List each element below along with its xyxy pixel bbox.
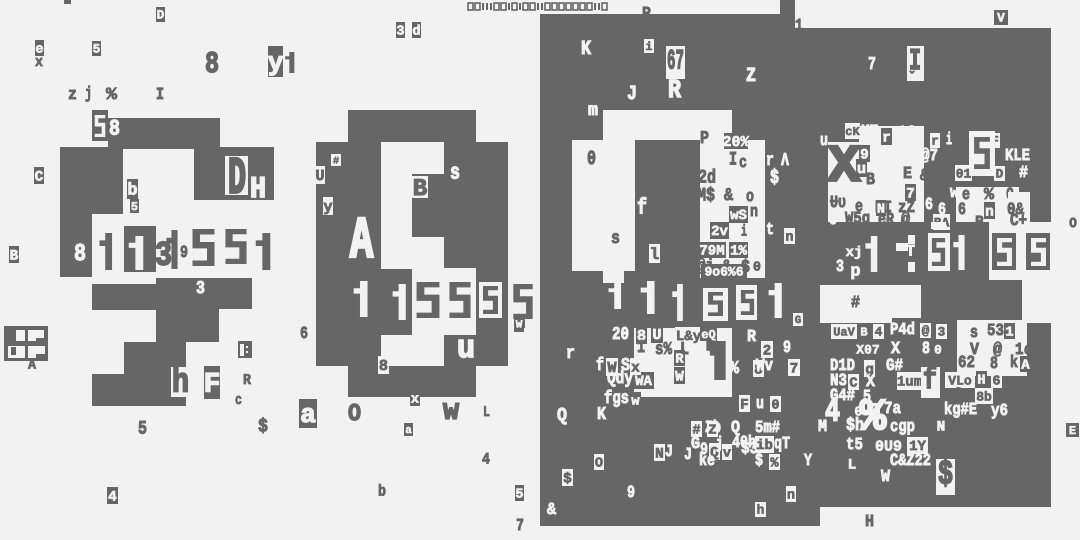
svg-text:n: n [750, 203, 758, 222]
svg-text:H: H [977, 374, 985, 389]
svg-text:H: H [250, 173, 266, 207]
svg-text:O: O [595, 457, 603, 472]
svg-text:cgp: cgp [890, 418, 915, 437]
svg-text:4: 4 [108, 489, 117, 505]
svg-text:b: b [378, 483, 386, 501]
svg-text:VLo: VLo [948, 373, 972, 388]
svg-text:fgs: fgs [604, 389, 629, 409]
svg-text:C&Z22: C&Z22 [890, 452, 931, 471]
svg-text:h: h [757, 503, 765, 518]
svg-text:o: o [1012, 389, 1020, 408]
svg-text:T: T [906, 243, 915, 261]
svg-text:5: 5 [515, 488, 523, 503]
svg-text:01: 01 [956, 166, 972, 181]
svg-text:u: u [857, 160, 866, 178]
svg-text:B: B [413, 176, 427, 203]
svg-text:C: C [35, 169, 44, 185]
svg-text:F: F [204, 370, 221, 401]
svg-text:W: W [607, 359, 617, 377]
svg-text:1: 1 [1005, 326, 1013, 341]
svg-text:W5g: W5g [845, 210, 870, 229]
svg-text:$: $ [770, 167, 779, 190]
svg-text:F: F [740, 397, 749, 413]
svg-text:s: s [611, 229, 620, 249]
svg-text:6: 6 [938, 201, 946, 220]
svg-text:5: 5 [138, 418, 147, 440]
svg-text:S: S [621, 356, 630, 376]
svg-text:eR: eR [878, 211, 895, 230]
svg-text:j: j [85, 85, 92, 104]
svg-text:c: c [235, 392, 242, 409]
svg-text:i: i [946, 131, 952, 150]
svg-text:u: u [820, 132, 828, 151]
svg-text:f: f [923, 364, 937, 398]
svg-text:a: a [405, 425, 412, 437]
svg-text:h: h [172, 364, 189, 402]
svg-text:W: W [881, 468, 891, 487]
svg-text:@: @ [901, 211, 910, 230]
svg-text:d: d [412, 25, 420, 40]
svg-text:4: 4 [482, 451, 490, 469]
svg-text:X: X [828, 137, 861, 196]
svg-text:9: 9 [627, 484, 635, 503]
svg-text:8: 8 [379, 357, 388, 375]
svg-text:P4d: P4d [890, 321, 915, 340]
svg-text:0: 0 [934, 343, 942, 358]
svg-text:O: O [348, 401, 361, 428]
svg-text:R: R [243, 372, 251, 389]
svg-text:y6: y6 [991, 402, 1008, 421]
svg-text:Ʌ: Ʌ [781, 151, 789, 171]
svg-text:V: V [997, 11, 1005, 26]
svg-text:Y: Y [804, 452, 813, 471]
svg-text:eQ: eQ [701, 328, 715, 342]
svg-text:a: a [300, 400, 316, 430]
svg-text:ˇ: ˇ [908, 70, 916, 88]
svg-text:8: 8 [990, 355, 998, 374]
svg-text:Q: Q [557, 405, 567, 427]
svg-text:kg#E: kg#E [944, 401, 977, 420]
svg-text:1: 1 [795, 17, 803, 36]
svg-text:ke: ke [699, 452, 715, 471]
svg-text:8b: 8b [976, 389, 992, 404]
svg-text:9: 9 [180, 244, 188, 263]
svg-text:R: R [747, 328, 757, 347]
svg-text:p: p [850, 263, 860, 282]
svg-text:t5: t5 [846, 436, 863, 455]
svg-text:@7: @7 [921, 147, 938, 166]
svg-text:xj: xj [846, 245, 863, 261]
svg-text:G: G [795, 315, 802, 327]
svg-text:7: 7 [516, 517, 524, 536]
svg-text:$: $ [938, 456, 953, 494]
svg-text:n: n [785, 231, 793, 246]
svg-text:r: r [882, 130, 891, 146]
svg-text:u: u [457, 330, 475, 367]
svg-text:P: P [642, 5, 651, 24]
svg-text:$: $ [755, 452, 763, 471]
svg-text:M$: M$ [697, 185, 715, 207]
svg-text:H: H [865, 513, 874, 532]
svg-text:x: x [631, 360, 640, 376]
svg-text:W: W [443, 400, 460, 427]
svg-text:C+: C+ [1010, 212, 1027, 231]
svg-text:3: 3 [836, 258, 844, 277]
svg-text:6: 6 [300, 325, 308, 344]
svg-text:y: y [268, 48, 284, 78]
svg-text:B: B [10, 248, 19, 264]
svg-text:&: & [547, 501, 557, 520]
svg-text:5: 5 [93, 42, 101, 57]
svg-text:D: D [996, 167, 1004, 182]
svg-text:8: 8 [922, 340, 930, 359]
svg-text:53: 53 [987, 322, 1004, 341]
svg-text:K: K [581, 38, 591, 61]
svg-text:E: E [1069, 424, 1076, 438]
svg-text:I: I [156, 86, 164, 105]
svg-text:HT: HT [861, 123, 878, 142]
svg-text:t: t [766, 221, 774, 240]
svg-text:5: 5 [131, 200, 138, 214]
svg-text:E: E [903, 165, 912, 184]
svg-text:J: J [665, 443, 673, 462]
svg-text:t3: t3 [899, 124, 916, 143]
svg-text:$h: $h [846, 416, 864, 436]
svg-text:8: 8 [205, 48, 219, 82]
svg-text:s%: s% [655, 340, 672, 360]
svg-text:UaV: UaV [833, 326, 855, 340]
svg-text:4: 4 [875, 325, 883, 340]
svg-text:4: 4 [825, 393, 840, 431]
svg-text:3: 3 [396, 25, 404, 40]
svg-text:R: R [675, 353, 684, 368]
svg-text:w: w [631, 395, 640, 410]
svg-text:J: J [627, 83, 637, 106]
svg-text:L: L [483, 404, 490, 421]
svg-text:9o6%6: 9o6%6 [704, 264, 743, 279]
svg-text:@: @ [922, 324, 930, 339]
svg-text:&: & [724, 186, 733, 206]
svg-text:A: A [1021, 359, 1030, 374]
svg-text:u: u [756, 395, 764, 414]
svg-text:s: s [450, 161, 460, 186]
svg-text:qT: qT [774, 435, 790, 454]
svg-text:c: c [739, 154, 747, 173]
svg-text:Z: Z [746, 65, 756, 88]
svg-text:6: 6 [958, 201, 966, 220]
svg-text:B: B [975, 214, 984, 233]
svg-text:r: r [566, 344, 575, 364]
svg-text:I1kz: I1kz [875, 145, 907, 164]
svg-text:l: l [650, 246, 660, 264]
svg-text:9: 9 [783, 339, 791, 358]
svg-text:67: 67 [667, 47, 684, 78]
svg-text:n: n [985, 204, 994, 220]
svg-text:D: D [228, 149, 246, 208]
svg-text:&x: &x [920, 167, 937, 186]
svg-text:i: i [645, 40, 652, 54]
svg-text:y: y [323, 198, 332, 216]
svg-text:o: o [1069, 214, 1077, 233]
svg-text:$: $ [563, 471, 572, 487]
svg-text:#: # [851, 294, 860, 313]
svg-text:z: z [68, 86, 77, 105]
svg-text:8: 8 [74, 241, 86, 268]
svg-text:B: B [866, 171, 875, 190]
svg-text:f: f [637, 196, 647, 221]
svg-text:A: A [350, 209, 373, 274]
svg-text:6: 6 [925, 196, 933, 215]
svg-text:U: U [315, 167, 324, 185]
svg-text:A: A [28, 358, 36, 373]
svg-text:X07: X07 [856, 342, 879, 357]
svg-text:N: N [937, 419, 946, 435]
svg-text:Wv: Wv [756, 357, 773, 376]
svg-text:62: 62 [958, 354, 975, 373]
svg-text:8: 8 [109, 117, 120, 142]
svg-text:%: % [729, 359, 739, 379]
svg-text:v: v [723, 447, 731, 462]
svg-text:1: 1 [637, 338, 645, 358]
svg-text:40h: 40h [732, 434, 756, 453]
svg-text:n: n [787, 489, 795, 504]
svg-text:#: # [1019, 164, 1028, 183]
svg-text:W: W [516, 320, 523, 332]
svg-text:m: m [909, 147, 918, 166]
svg-text:0: 0 [587, 148, 596, 171]
svg-text:M: M [818, 418, 827, 437]
svg-text:P: P [700, 129, 709, 149]
svg-text:3: 3 [196, 279, 205, 299]
svg-text:e: e [829, 211, 837, 230]
svg-text:$: $ [258, 416, 268, 438]
svg-text:20: 20 [612, 325, 629, 345]
svg-text:x: x [35, 54, 43, 71]
svg-text:D: D [157, 8, 165, 23]
svg-text:2v: 2v [711, 224, 728, 240]
svg-text:k: k [1010, 354, 1018, 373]
svg-text:W: W [675, 369, 684, 385]
svg-text:0: 0 [753, 261, 761, 276]
svg-text:m: m [588, 101, 598, 121]
svg-text:f: f [596, 356, 604, 376]
svg-text:#: # [333, 156, 339, 167]
svg-text:WA: WA [635, 374, 652, 390]
svg-text:1um: 1um [897, 375, 922, 391]
svg-text:i: i [741, 223, 747, 241]
svg-text:B: B [860, 326, 867, 340]
svg-text:L: L [848, 457, 857, 473]
svg-text:7a: 7a [884, 400, 901, 419]
svg-text:N: N [655, 446, 664, 462]
svg-text:7: 7 [790, 361, 799, 377]
svg-text:b: b [127, 182, 137, 201]
svg-text:0: 0 [771, 399, 779, 414]
svg-text:I: I [729, 149, 737, 171]
svg-text:R: R [668, 75, 681, 105]
svg-text:j: j [716, 435, 723, 454]
svg-text:7: 7 [868, 55, 876, 75]
svg-text:x: x [411, 393, 419, 408]
svg-text:3: 3 [938, 325, 946, 340]
svg-text:%: % [106, 86, 118, 105]
svg-text:%: % [770, 457, 779, 472]
